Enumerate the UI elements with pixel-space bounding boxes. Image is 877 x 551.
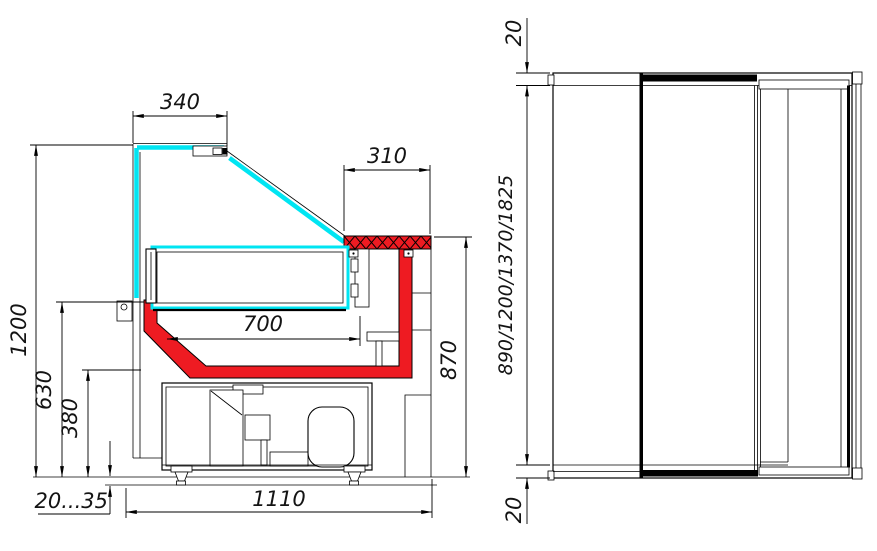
- door-edge-lines: [755, 86, 842, 471]
- slanted-glass-outline: [227, 151, 347, 238]
- dim-20-35: 20...35: [35, 441, 110, 514]
- foot-pad: [177, 481, 186, 485]
- side-section-view: 340 310 1200 630 380 20...35: [7, 90, 472, 518]
- foot-cone: [348, 472, 361, 481]
- dim-label-20-35: 20...35: [35, 489, 108, 513]
- end-wall-bottom-cap: [853, 468, 863, 479]
- dim-20bot-ticks: [516, 465, 550, 478]
- machine-compartment: [162, 383, 372, 485]
- end-wall-strip: [853, 72, 863, 479]
- dim-label-870: 870: [437, 340, 461, 380]
- display-deck: [146, 247, 348, 310]
- adjustable-foot-left: [171, 466, 192, 485]
- evaporator-notch-bottom: [351, 284, 358, 297]
- door1-top-rail: [641, 75, 757, 82]
- dim-label-1200: 1200: [7, 303, 31, 356]
- support-post: [261, 440, 267, 465]
- evaporator-notch-top: [351, 259, 358, 272]
- shelf-support: [376, 341, 382, 366]
- technical-drawing: 340 310 1200 630 380 20...35: [0, 0, 877, 551]
- lamp-end-cap: [223, 148, 228, 155]
- body-outline: [553, 73, 852, 478]
- shelf-bracket: [367, 332, 399, 341]
- dim-label-630: 630: [32, 370, 56, 410]
- dim-label-380: 380: [58, 398, 82, 438]
- dim-label-height-variants: 890/1200/1370/1825: [495, 175, 517, 376]
- foot-pad: [350, 481, 359, 485]
- dim-20top-ticks: [516, 73, 550, 86]
- bottom-left-tab: [548, 471, 554, 480]
- dim-label-310: 310: [367, 144, 407, 168]
- evaporator-plate: [355, 249, 369, 307]
- dim-310: 310: [344, 144, 430, 234]
- door2-top-rail: [759, 80, 849, 89]
- condenser: [210, 390, 243, 466]
- end-wall-top-cap: [853, 72, 863, 84]
- dim-340: 340: [133, 90, 227, 146]
- dim-label-1110: 1110: [252, 487, 305, 511]
- deck-glass-tray: [152, 247, 348, 308]
- adjustable-foot-right: [344, 466, 365, 485]
- dim-20-bottom: 20: [502, 465, 550, 524]
- rear-view: 20 890/1200/1370/1825 20: [495, 18, 862, 524]
- dim-label-700: 700: [243, 312, 283, 336]
- dim-label-340: 340: [160, 90, 200, 114]
- bracket-bolt: [121, 304, 127, 310]
- dim-20-top: 20: [502, 18, 550, 86]
- lamp-fixture: [193, 146, 228, 156]
- bolt-left-dot: [352, 252, 354, 254]
- bolt-right-dot: [407, 252, 409, 254]
- foot-flange: [344, 466, 365, 472]
- dim-height-variants: 890/1200/1370/1825: [495, 86, 527, 466]
- dim-label-20-top: 20: [502, 20, 526, 47]
- dim-380: 380: [58, 370, 141, 477]
- lamp-detail: [213, 148, 222, 155]
- drawing-canvas: 340 310 1200 630 380 20...35: [0, 0, 877, 551]
- dim-label-20-bottom: 20: [502, 497, 526, 524]
- door1-bottom-rail: [641, 470, 758, 477]
- right-edge-post: [847, 86, 850, 468]
- dim-700: 700: [167, 312, 360, 346]
- dim-870: 870: [434, 237, 472, 477]
- compressor: [308, 407, 354, 467]
- door2-bottom-rail: [759, 467, 849, 475]
- dim-310-ext-lines: [344, 165, 430, 234]
- electrical-box: [245, 415, 270, 440]
- slanted-glass: [230, 158, 345, 242]
- drain-tray: [270, 452, 308, 466]
- foot-cone: [175, 472, 188, 481]
- foot-flange: [171, 466, 192, 472]
- top-left-tab: [548, 75, 554, 85]
- countertop-hatch: [344, 236, 431, 249]
- end-wall-lines: [856, 84, 861, 468]
- door-divider-post: [640, 73, 644, 478]
